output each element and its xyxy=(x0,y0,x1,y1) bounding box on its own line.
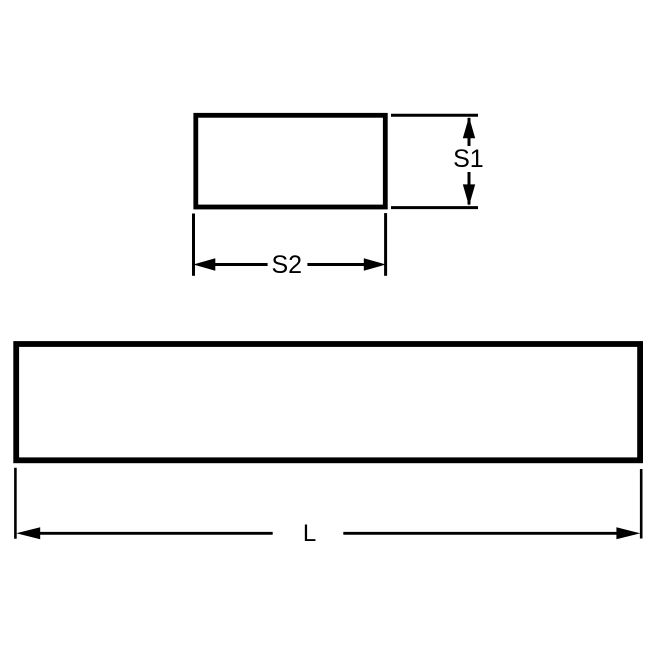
svg-text:L: L xyxy=(303,520,316,547)
svg-text:S2: S2 xyxy=(272,251,303,279)
svg-text:S1: S1 xyxy=(453,145,484,173)
